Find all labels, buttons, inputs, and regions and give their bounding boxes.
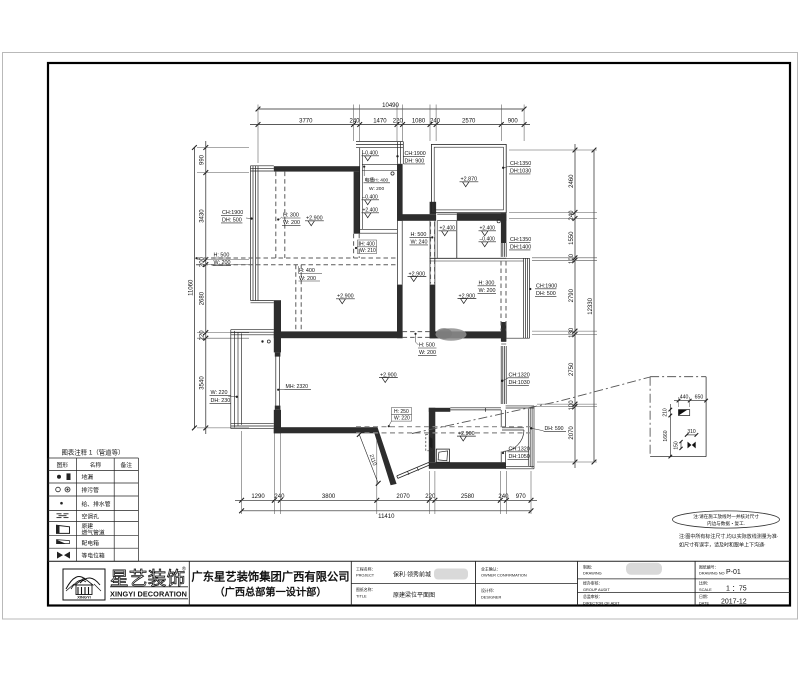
svg-text:900: 900 — [508, 118, 519, 124]
svg-text:1080: 1080 — [412, 118, 426, 124]
svg-text:240: 240 — [430, 118, 441, 124]
svg-text:240: 240 — [498, 494, 509, 500]
svg-text:220: 220 — [393, 118, 404, 124]
svg-text:2570: 2570 — [462, 118, 476, 124]
svg-text:H: 500: H: 500 — [214, 253, 230, 259]
svg-text:GROUP AUDIT: GROUP AUDIT — [583, 587, 610, 592]
svg-text:W: 220: W: 220 — [394, 416, 410, 422]
svg-text:W: 200: W: 200 — [479, 288, 496, 294]
svg-text:XINGYI: XINGYI — [77, 595, 91, 600]
svg-text:W: 200: W: 200 — [283, 220, 300, 226]
svg-text:CH:1320: CH:1320 — [509, 372, 530, 378]
svg-text:®: ® — [182, 566, 186, 573]
svg-text:1 ：75: 1 ：75 — [726, 585, 747, 592]
svg-text:电槽H: 400: 电槽H: 400 — [365, 176, 389, 183]
svg-text:1660: 1660 — [663, 430, 669, 441]
svg-text:图纸名称：: 图纸名称： — [356, 587, 375, 592]
svg-text:100: 100 — [569, 400, 575, 411]
svg-text:240: 240 — [274, 494, 285, 500]
svg-text:2070: 2070 — [396, 494, 410, 500]
svg-text:440: 440 — [680, 394, 689, 400]
svg-text:燃气管道: 燃气管道 — [82, 529, 105, 537]
svg-text:TITLE: TITLE — [356, 593, 367, 598]
svg-text:DH:1400: DH:1400 — [510, 244, 531, 250]
svg-text:210: 210 — [663, 408, 669, 417]
svg-text:H: 300: H: 300 — [283, 213, 299, 219]
svg-text:12330: 12330 — [588, 297, 594, 314]
svg-text:100: 100 — [569, 253, 575, 264]
svg-text:150: 150 — [674, 441, 680, 450]
svg-text:H: 500: H: 500 — [419, 343, 435, 349]
svg-text:3770: 3770 — [299, 118, 313, 124]
svg-text:2750: 2750 — [569, 362, 575, 376]
svg-text:2680: 2680 — [200, 291, 206, 305]
svg-text:CH:1320: CH:1320 — [509, 446, 530, 452]
svg-text:P-01: P-01 — [726, 569, 741, 576]
svg-text:CH:1350: CH:1350 — [510, 237, 531, 243]
svg-text:1470: 1470 — [373, 118, 387, 124]
svg-text:DH: 500: DH: 500 — [222, 217, 242, 223]
svg-text:保利·领秀前城: 保利·领秀前城 — [393, 570, 431, 578]
svg-text:220: 220 — [200, 330, 206, 341]
svg-text:DIRECTOR OF ADIT: DIRECTOR OF ADIT — [583, 600, 620, 605]
svg-text:日期：: 日期： — [699, 594, 711, 599]
svg-text:240: 240 — [569, 210, 575, 221]
svg-text:650: 650 — [695, 394, 704, 400]
svg-text:地漏: 地漏 — [82, 473, 94, 481]
svg-text:2790: 2790 — [569, 288, 575, 302]
svg-text:名称: 名称 — [90, 461, 102, 469]
svg-text:MH: 2320: MH: 2320 — [286, 384, 309, 390]
svg-text:H: 500: H: 500 — [411, 232, 427, 238]
svg-text:DH:1030: DH:1030 — [509, 380, 530, 386]
svg-text:DATE: DATE — [699, 600, 709, 605]
svg-text:11060: 11060 — [188, 279, 194, 296]
svg-text:W: 210: W: 210 — [360, 248, 376, 254]
svg-text:OWNER CONFIRMATION: OWNER CONFIRMATION — [481, 573, 527, 578]
svg-text:内边与数据・复工.: 内边与数据・复工. — [707, 520, 745, 527]
svg-text:1550: 1550 — [569, 231, 575, 245]
svg-text:图表注释 1（管道等）: 图表注释 1（管道等） — [62, 448, 125, 457]
svg-text:220: 220 — [425, 494, 436, 500]
svg-text:如尺寸有误字，请及时和跟单上下沟通·: 如尺寸有误字，请及时和跟单上下沟通· — [679, 542, 766, 549]
svg-text:比例：: 比例： — [699, 581, 711, 586]
svg-text:2017-12: 2017-12 — [721, 599, 747, 606]
svg-text:原建: 原建 — [82, 522, 94, 530]
svg-text:业主确认：: 业主确认： — [481, 566, 500, 571]
svg-text:原建梁位平面图: 原建梁位平面图 — [393, 591, 435, 599]
svg-text:等电位箱: 等电位箱 — [82, 552, 105, 560]
svg-text:注:请在施工放线时一并核对尺寸: 注:请在施工放线时一并核对尺寸 — [693, 513, 759, 520]
svg-text:990: 990 — [200, 154, 206, 165]
svg-text:H: 300: H: 300 — [479, 280, 495, 286]
svg-text:CH:1900: CH:1900 — [405, 151, 426, 157]
svg-text:XINGYI DECORATION: XINGYI DECORATION — [110, 589, 187, 598]
svg-text:1290: 1290 — [251, 494, 265, 500]
svg-text:11410: 11410 — [378, 514, 395, 520]
svg-text:PROJECT: PROJECT — [356, 573, 375, 578]
svg-text:CH:1900: CH:1900 — [222, 210, 243, 216]
svg-text:设计师：: 设计师： — [481, 588, 497, 593]
svg-text:2070: 2070 — [569, 426, 575, 440]
svg-text:DH:1030: DH:1030 — [510, 168, 531, 174]
svg-text:3540: 3540 — [200, 376, 206, 390]
svg-text:DRAWING NO: DRAWING NO — [699, 571, 725, 576]
svg-text:图形: 图形 — [56, 461, 68, 469]
svg-text:DH: 900: DH: 900 — [405, 158, 425, 164]
svg-text:970: 970 — [516, 494, 527, 500]
svg-text:经办审核：: 经办审核： — [583, 581, 602, 586]
svg-text:给、排水管: 给、排水管 — [82, 500, 111, 508]
svg-text:工程名称：: 工程名称： — [356, 566, 375, 571]
svg-text:CH:1350: CH:1350 — [510, 161, 531, 167]
svg-text:DH: 230: DH: 230 — [211, 398, 231, 404]
svg-text:3800: 3800 — [322, 494, 336, 500]
svg-text:总监审核：: 总监审核： — [583, 594, 602, 599]
svg-text:（广西总部第一设计部）: （广西总部第一设计部） — [214, 585, 326, 598]
svg-text:2580: 2580 — [461, 494, 475, 500]
svg-text:2460: 2460 — [569, 174, 575, 188]
svg-text:H: 400: H: 400 — [360, 241, 375, 247]
svg-text:排污管: 排污管 — [82, 486, 100, 494]
svg-text:W: 200: W: 200 — [419, 350, 436, 356]
svg-text:DESIGNER: DESIGNER — [481, 594, 502, 599]
svg-text:DRAWING: DRAWING — [583, 571, 602, 576]
svg-text:W: 240: W: 240 — [411, 239, 428, 245]
svg-text:240: 240 — [349, 118, 360, 124]
svg-text:W: 220: W: 220 — [211, 390, 228, 396]
svg-text:CH:1900: CH:1900 — [536, 283, 557, 289]
svg-text:310: 310 — [687, 429, 696, 435]
svg-text:DH: 500: DH: 500 — [536, 291, 556, 297]
svg-text:配电箱: 配电箱 — [82, 539, 100, 547]
svg-text:星艺装饰: 星艺装饰 — [110, 568, 186, 589]
svg-text:H: 250: H: 250 — [394, 409, 409, 415]
svg-text:DH:1050: DH:1050 — [509, 454, 530, 460]
svg-text:SCALE: SCALE — [699, 587, 712, 592]
svg-text:图纸编号：: 图纸编号： — [699, 564, 718, 569]
svg-text:W: 200: W: 200 — [214, 260, 231, 266]
svg-text:DH: 590: DH: 590 — [545, 426, 564, 432]
svg-text:W: 200: W: 200 — [369, 186, 384, 192]
svg-text:注:图中所有标注尺寸,均以实际放线测量为准·: 注:图中所有标注尺寸,均以实际放线测量为准· — [679, 533, 779, 540]
svg-text:空调孔: 空调孔 — [82, 512, 100, 520]
svg-text:130: 130 — [569, 327, 575, 338]
svg-text:备注: 备注 — [120, 461, 132, 469]
svg-text:制图：: 制图： — [583, 564, 595, 569]
svg-text:3430: 3430 — [200, 209, 206, 223]
svg-text:广东星艺装饰集团广西有限公司: 广东星艺装饰集团广西有限公司 — [191, 570, 349, 584]
